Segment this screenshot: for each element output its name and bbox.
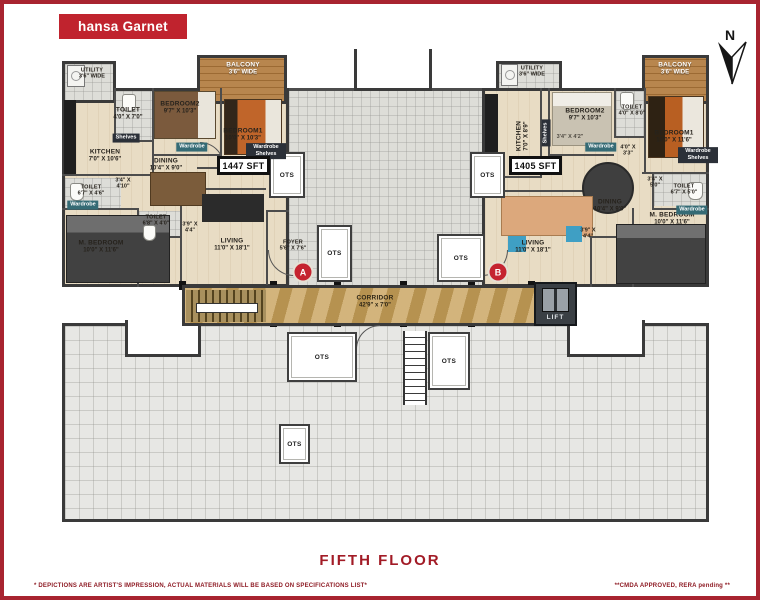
terrace-stairs <box>403 331 427 405</box>
wardrobe-tag: Wardrobe <box>585 143 616 152</box>
wardrobe-tag: Wardrobe <box>676 206 707 215</box>
corridor-label: CORRIDOR42'9" x 7'0" <box>340 295 410 310</box>
ots-box: OTS <box>428 332 470 390</box>
center-notch <box>354 49 432 91</box>
wardrobe-shelves-tag: Wardrobe Shelves <box>678 147 718 163</box>
ots-label: OTS <box>280 172 295 179</box>
wall-segment <box>62 174 152 176</box>
lift-doors-icon <box>542 288 569 312</box>
floor-title: FIFTH FLOOR <box>4 552 756 569</box>
brand-logo: hansa Garnet <box>59 14 187 39</box>
unit-a-area-label: 1447 SFT <box>223 161 265 171</box>
ots-box: OTS <box>437 234 485 282</box>
ots-label: OTS <box>327 250 342 257</box>
room-label-balcony-a: BALCONY3'6" WIDE <box>213 62 273 77</box>
passage-label-b-small: 3'4" X 4'2" <box>548 134 592 140</box>
room-label-utility-b: UTILITY3'6" WIDE <box>509 66 555 79</box>
block-a-badge: A <box>295 264 312 281</box>
ots-box: OTS <box>279 424 310 464</box>
room-label-toilet-top-a: TOILET4'0" X 7'0" <box>112 107 144 122</box>
unit-a-area-box: 1447 SFT <box>217 156 270 175</box>
ots-label: OTS <box>287 441 302 448</box>
north-compass-icon: N <box>707 26 757 88</box>
room-label-living-b: LIVING11'0" X 18'1" <box>500 240 566 255</box>
floor-plan-page: hansa Garnet N LIFT <box>0 0 760 600</box>
wall-segment <box>430 88 482 91</box>
bed-icon <box>616 224 706 284</box>
ots-label: OTS <box>442 358 457 365</box>
wall-segment <box>266 210 289 212</box>
lift: LIFT <box>534 282 577 326</box>
wall-segment <box>266 210 268 287</box>
tv-unit-icon <box>202 194 264 222</box>
room-label-bedroom2-a: BEDROOM29'7" X 10'3" <box>150 101 210 116</box>
wall-segment <box>614 136 644 138</box>
shelves-tag: Shelves <box>113 134 140 143</box>
wall-segment <box>220 88 222 154</box>
ots-box: OTS <box>317 225 352 282</box>
room-label-mbedroom-a: M. BEDROOM10'0" X 11'6" <box>65 240 137 255</box>
corridor-stairs <box>186 290 266 322</box>
room-label-living-a: LIVING11'0" X 18'1" <box>199 238 265 253</box>
brand-logo-text: hansa Garnet <box>78 19 168 34</box>
room-label-bedroom1-a: BEDROOM110'0" X 10'3" <box>211 128 275 143</box>
ots-box: OTS <box>470 152 505 198</box>
disclaimer-text: * DEPICTIONS ARE ARTIST'S IMPRESSION, AC… <box>34 583 367 589</box>
wall-segment <box>289 88 356 91</box>
room-label-toilet-left-a: TOILET6'7" X 4'6" <box>66 185 116 198</box>
room-label-balcony-b: BALCONY3'6" WIDE <box>645 62 705 77</box>
room-label-kitchen-a: KITCHEN7'0" X 10'6" <box>76 149 134 164</box>
passage-label-a2: 3'9" X 4'4" <box>177 222 203 235</box>
ots-label: OTS <box>454 255 469 262</box>
unit-b-area-box: 1405 SFT <box>509 156 562 175</box>
room-label-foyer-a: FOYER5'6" X 7'6" <box>271 240 315 253</box>
wall-segment <box>502 190 590 192</box>
dining-table-icon <box>150 172 206 206</box>
ots-label: OTS <box>315 354 330 361</box>
block-b-badge: B <box>490 264 507 281</box>
shelves-tag: Shelves <box>542 120 551 147</box>
room-label-toilet-mid-a: TOILET6'8" X 4'0" <box>134 215 178 228</box>
wardrobe-tag: Wardrobe <box>176 143 207 152</box>
passage-label-b3: 3'9" X 4'4" <box>575 228 601 241</box>
room-label-toilet-top-b: TOILET4'0" X 8'0" <box>618 105 646 118</box>
room-label-dining-a: DINING10'4" X 9'0" <box>136 158 196 173</box>
room-label-bedroom1-b: BEDROOM110'0" X 11'6" <box>643 130 705 145</box>
room-label-dining-b: DINING10'4" X 9'0" <box>580 199 640 214</box>
kitchen-counter-icon <box>64 100 76 174</box>
ots-box: OTS <box>269 152 305 198</box>
compass-n-label: N <box>725 27 735 43</box>
ots-label: OTS <box>480 172 495 179</box>
unit-b-area-label: 1405 SFT <box>515 161 557 171</box>
stair-rail <box>196 303 258 313</box>
approval-note: **CMDA APPROVED, RERA pending ** <box>615 583 730 589</box>
passage-label-b1: 4'0" X 3'3" <box>615 145 641 158</box>
ots-box: OTS <box>287 332 357 382</box>
terrace-notch-right <box>567 320 645 357</box>
room-label-bedroom2-b: BEDROOM29'7" X 10'3" <box>555 108 615 123</box>
wardrobe-tag: Wardrobe <box>67 201 98 210</box>
room-label-toilet-right-b: TOILET6'7" X 5'0" <box>660 184 708 197</box>
room-label-utility-a: UTILITY3'6" WIDE <box>69 68 115 81</box>
lift-label: LIFT <box>536 314 575 321</box>
